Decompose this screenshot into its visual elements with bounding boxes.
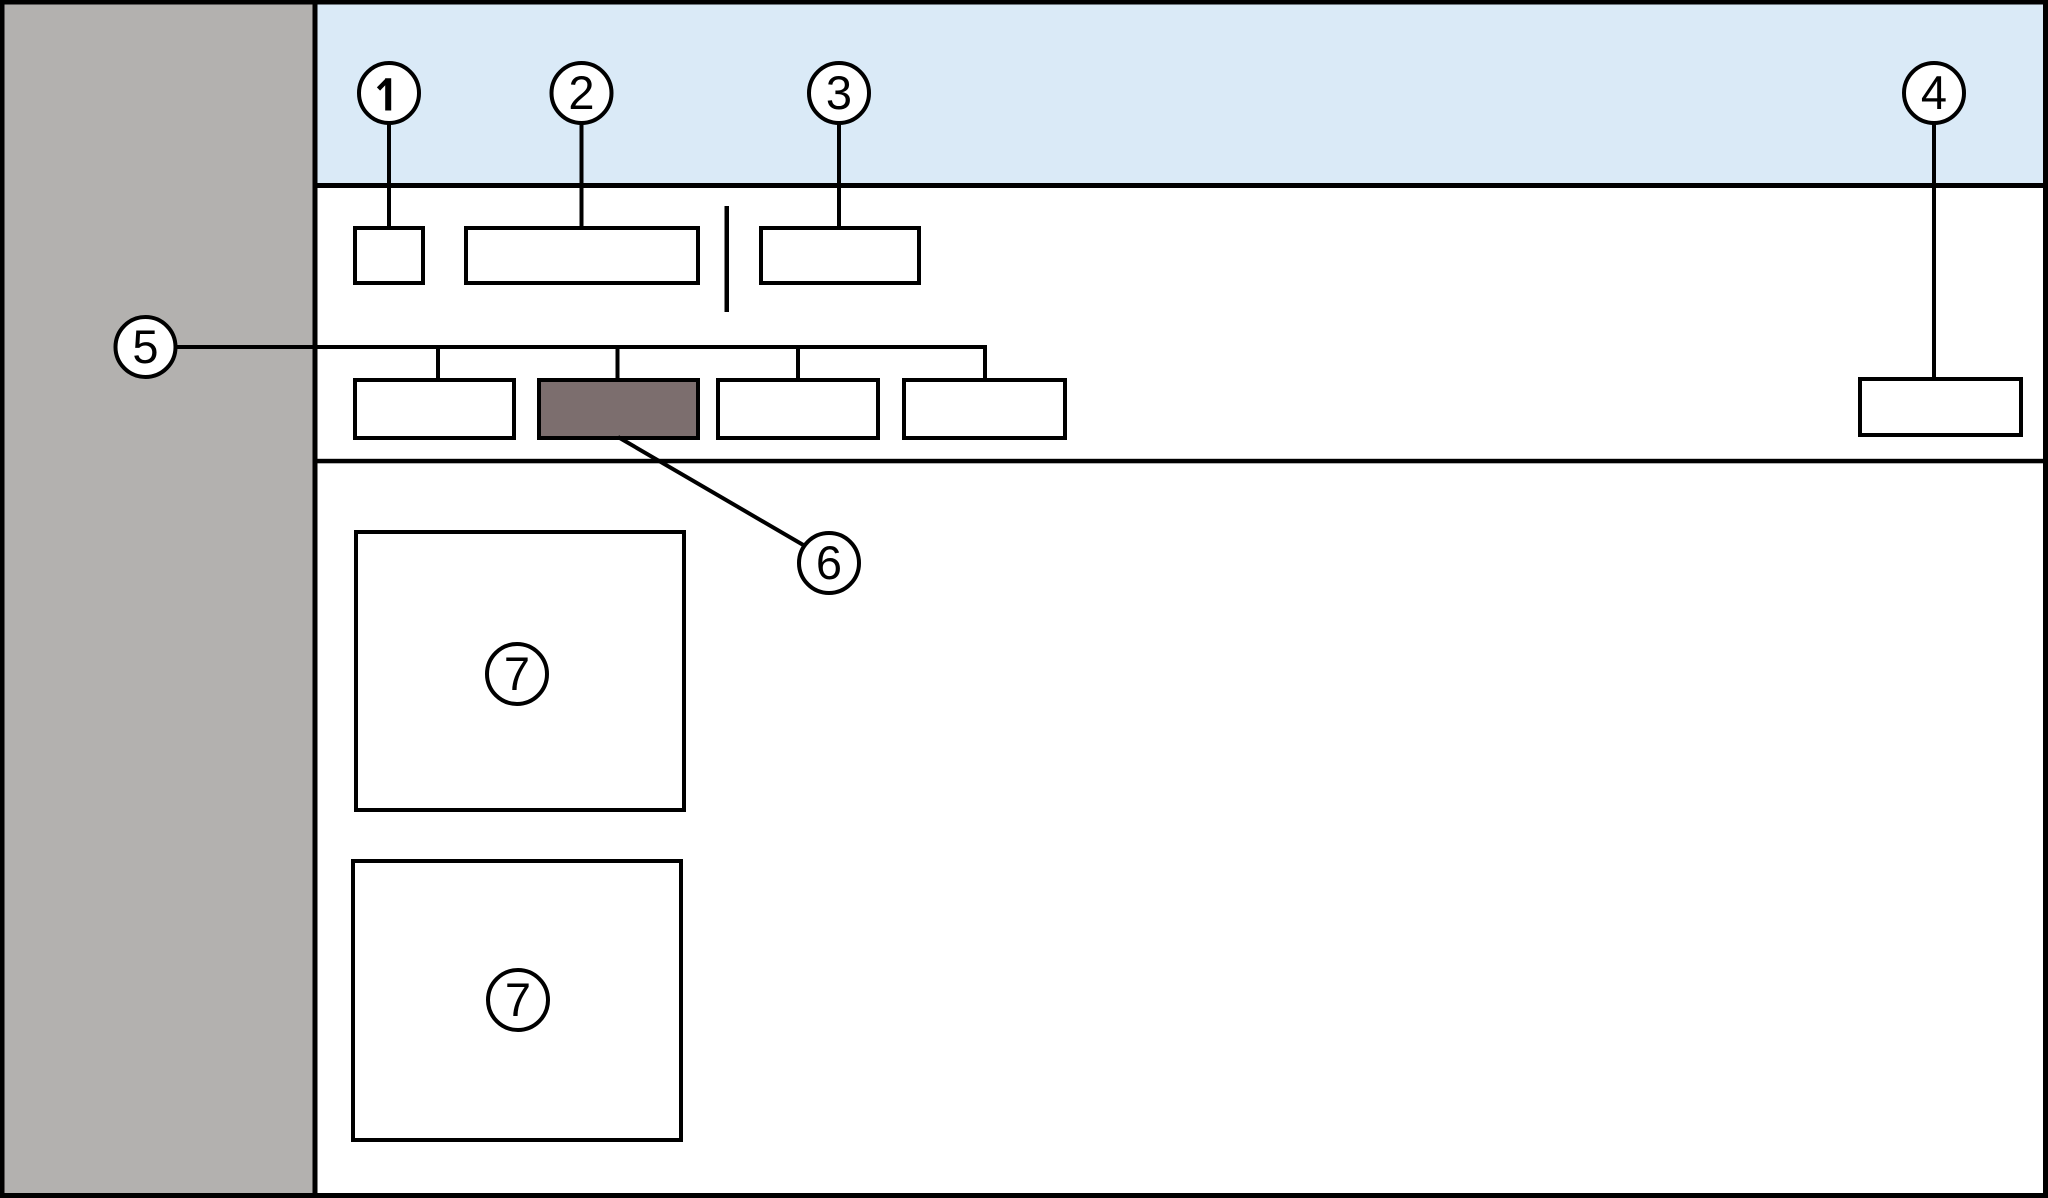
svg-text:3: 3 xyxy=(826,66,852,119)
svg-text:7: 7 xyxy=(504,647,530,700)
svg-text:5: 5 xyxy=(132,320,158,373)
svg-text:6: 6 xyxy=(816,536,842,589)
svg-text:2: 2 xyxy=(568,66,594,119)
svg-text:4: 4 xyxy=(1921,66,1947,119)
svg-text:7: 7 xyxy=(505,973,531,1026)
